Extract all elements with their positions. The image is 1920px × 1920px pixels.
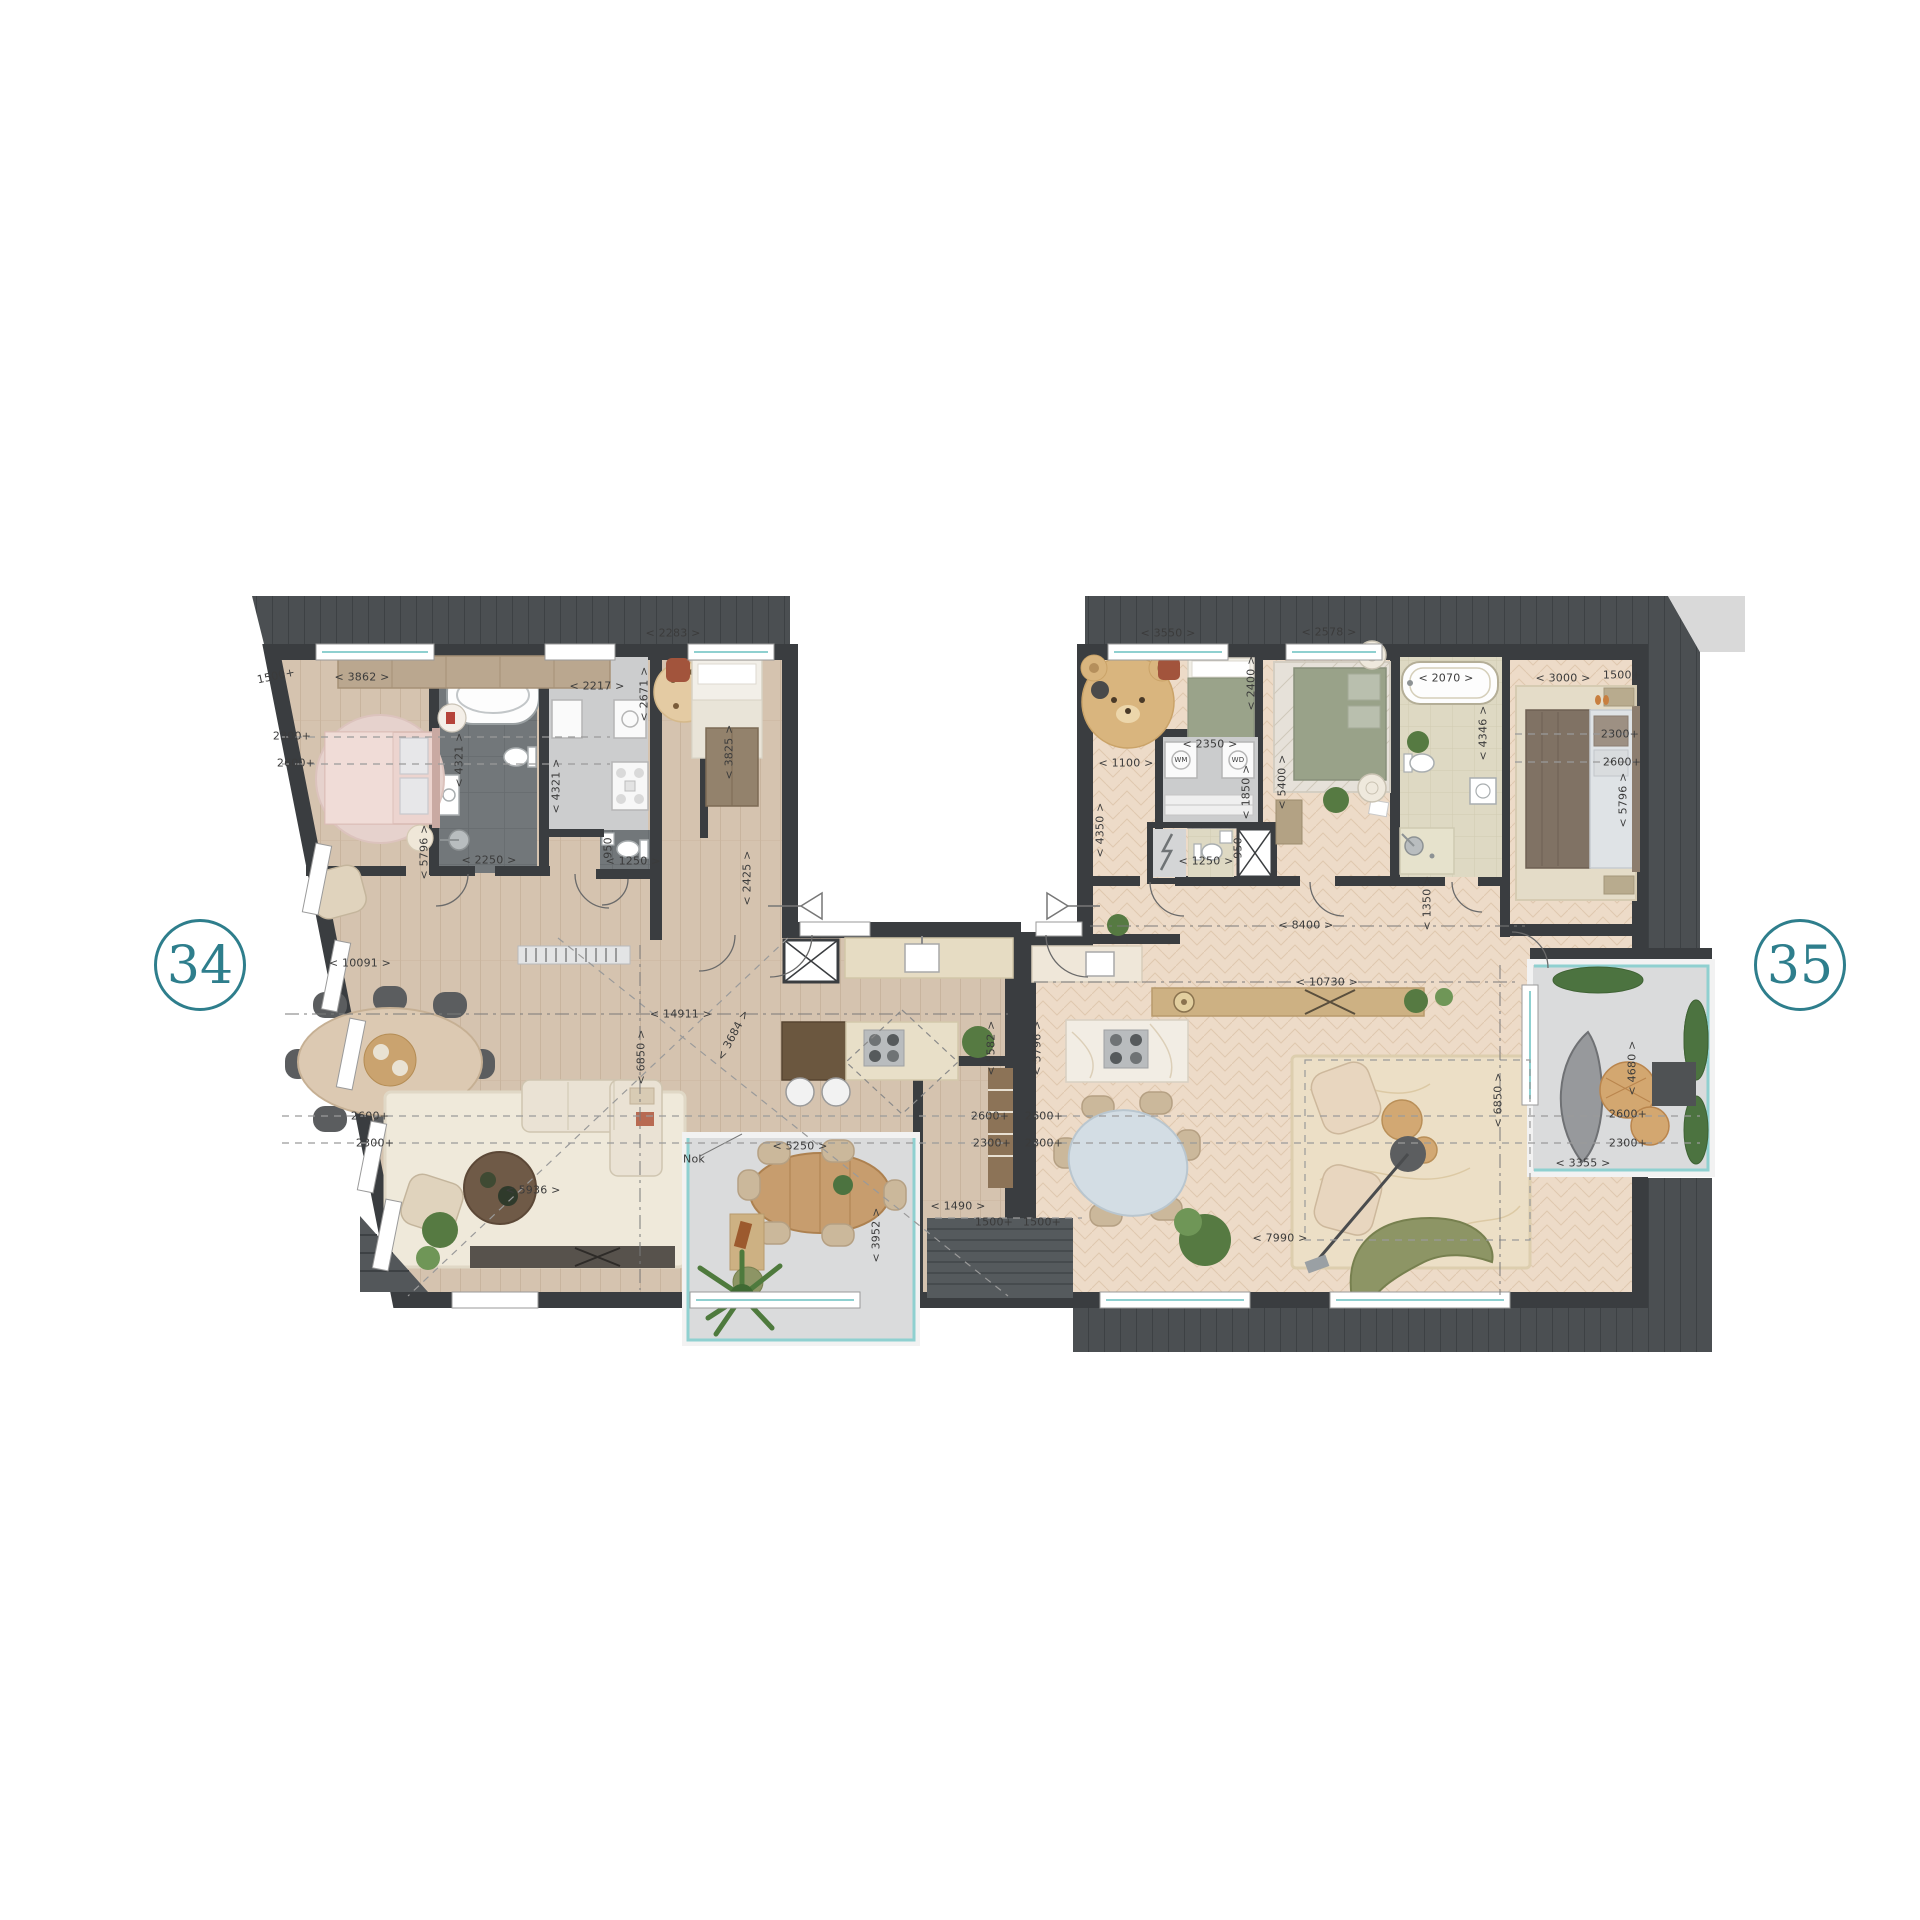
entrance-arrows bbox=[768, 893, 1100, 919]
unit-badge-35[interactable]: 35 bbox=[1754, 919, 1846, 1011]
unit-34-bathroom bbox=[437, 657, 539, 873]
floor-plan-drawing bbox=[0, 0, 1920, 1920]
unit-35-bathroom bbox=[1400, 657, 1502, 877]
unit-35-tech-wc-shaft bbox=[1150, 825, 1274, 881]
unit-35-utility-room bbox=[1163, 737, 1258, 823]
unit-34-balcony bbox=[685, 1134, 917, 1343]
unit-35-master-bedroom bbox=[1516, 686, 1640, 900]
entrance-arrow-unit35-icon bbox=[1047, 893, 1068, 919]
entrance-arrow-unit34-icon bbox=[801, 893, 822, 919]
unit-34-wc bbox=[600, 830, 650, 874]
unit-35-balcony bbox=[1530, 948, 1712, 1174]
unit-badge-34[interactable]: 34 bbox=[154, 919, 246, 1011]
floor-plan-canvas: 1500+< 3862 >2300+2600+< 5796 >< 4321 ><… bbox=[0, 0, 1920, 1920]
